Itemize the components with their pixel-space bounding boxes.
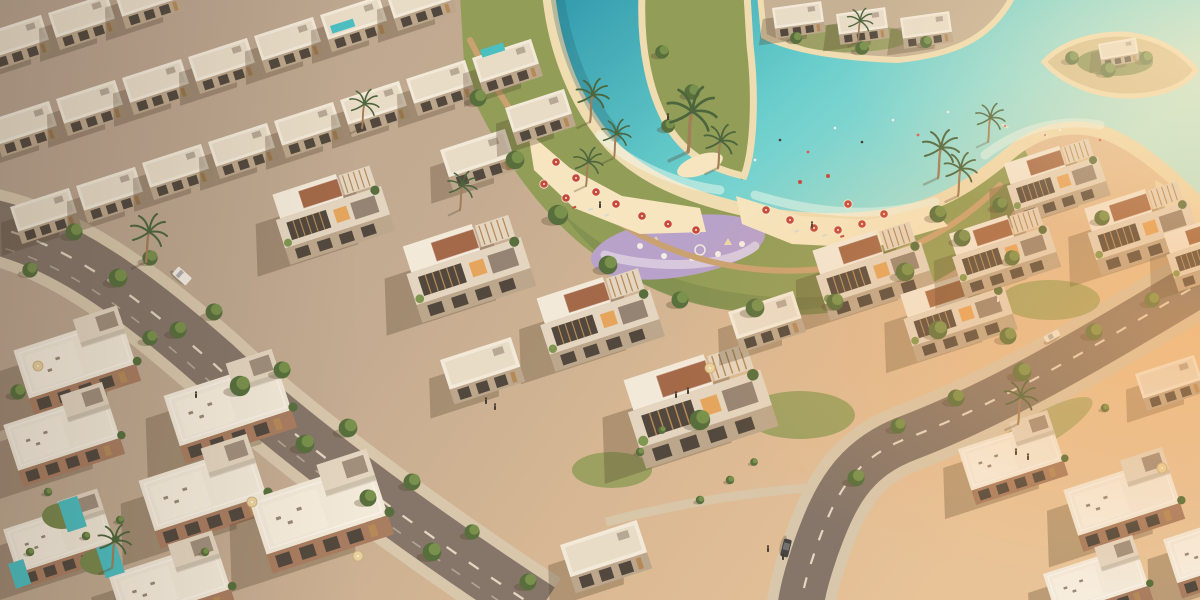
- aerial-render-stage: [0, 0, 1200, 600]
- left-vignette: [0, 0, 1200, 600]
- aerial-render: [0, 0, 1200, 600]
